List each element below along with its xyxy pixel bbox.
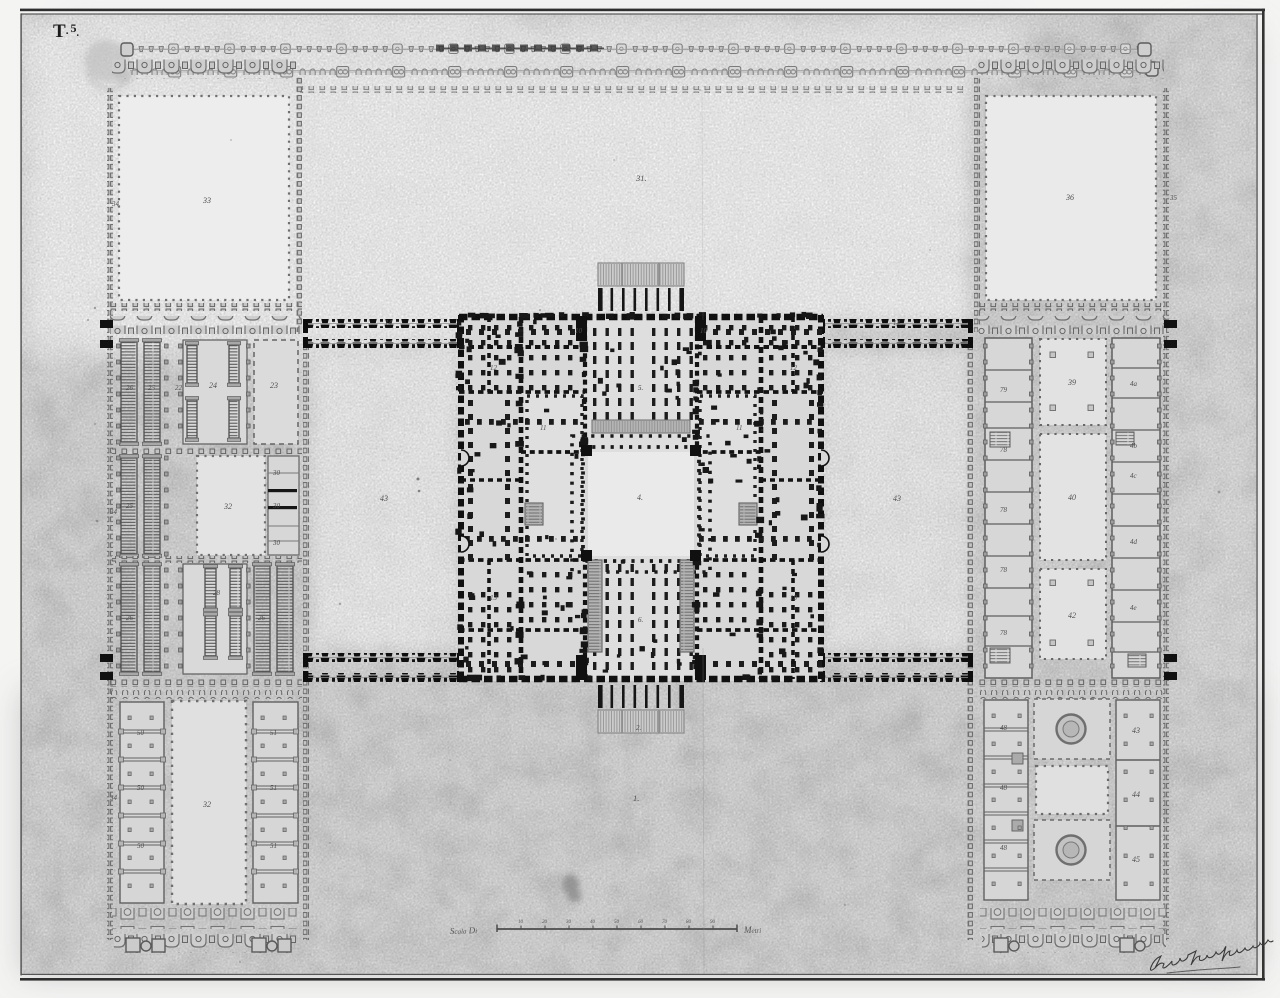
svg-text:Scala Di: Scala Di xyxy=(450,925,478,936)
svg-text:10: 10 xyxy=(575,327,583,335)
svg-text:35: 35 xyxy=(1169,194,1178,202)
svg-text:13: 13 xyxy=(490,594,498,602)
svg-text:2.: 2. xyxy=(636,724,642,732)
svg-text:48: 48 xyxy=(1000,784,1008,792)
svg-text:78: 78 xyxy=(1000,446,1008,454)
svg-text:44: 44 xyxy=(1132,790,1140,799)
svg-text:34: 34 xyxy=(109,794,118,802)
svg-text:43: 43 xyxy=(380,494,388,503)
svg-text:1.: 1. xyxy=(633,793,639,803)
svg-text:14: 14 xyxy=(893,319,901,327)
svg-text:78: 78 xyxy=(1000,566,1008,574)
svg-text:23: 23 xyxy=(270,381,278,390)
svg-text:11: 11 xyxy=(736,424,742,432)
svg-text:4d: 4d xyxy=(1130,538,1138,546)
svg-text:51: 51 xyxy=(270,729,277,737)
svg-text:22: 22 xyxy=(175,384,183,392)
svg-text:34: 34 xyxy=(111,200,120,208)
svg-text:20: 20 xyxy=(542,920,548,925)
svg-text:50: 50 xyxy=(137,729,145,737)
svg-text:34: 34 xyxy=(109,508,118,516)
svg-text:51: 51 xyxy=(270,784,277,792)
svg-text:43: 43 xyxy=(1132,726,1140,735)
svg-text:40: 40 xyxy=(1068,493,1076,502)
svg-text:26: 26 xyxy=(126,614,134,622)
svg-text:4e: 4e xyxy=(1130,604,1137,612)
svg-text:32: 32 xyxy=(202,800,211,809)
svg-text:10: 10 xyxy=(700,327,708,335)
svg-text:36: 36 xyxy=(1065,193,1074,202)
svg-text:50: 50 xyxy=(137,842,145,850)
svg-text:26: 26 xyxy=(258,614,266,622)
svg-text:31.: 31. xyxy=(635,173,647,183)
svg-text:90: 90 xyxy=(710,920,716,925)
svg-text:10: 10 xyxy=(518,920,524,925)
svg-text:Metri: Metri xyxy=(743,925,761,935)
svg-text:42: 42 xyxy=(1068,611,1076,620)
svg-text:48: 48 xyxy=(1000,844,1008,852)
svg-text:14: 14 xyxy=(385,319,393,327)
svg-text:50: 50 xyxy=(614,920,620,925)
svg-text:70: 70 xyxy=(662,920,668,925)
svg-text:5.: 5. xyxy=(638,384,644,392)
svg-text:30: 30 xyxy=(272,469,281,477)
svg-text:48: 48 xyxy=(1000,724,1008,732)
svg-text:12: 12 xyxy=(790,364,798,372)
svg-text:4c: 4c xyxy=(1130,472,1138,480)
svg-text:24: 24 xyxy=(209,381,217,390)
svg-text:30: 30 xyxy=(272,539,281,547)
svg-text:4a: 4a xyxy=(1130,380,1138,388)
svg-text:28: 28 xyxy=(213,589,221,597)
svg-text:11: 11 xyxy=(540,424,546,432)
svg-text:6.: 6. xyxy=(638,616,644,624)
svg-text:60: 60 xyxy=(638,920,644,925)
svg-text:78: 78 xyxy=(1000,629,1008,637)
svg-text:33: 33 xyxy=(202,196,211,205)
svg-text:13: 13 xyxy=(790,594,798,602)
svg-text:4b: 4b xyxy=(1130,442,1138,450)
svg-text:78: 78 xyxy=(1000,506,1008,514)
svg-text:26: 26 xyxy=(126,384,134,392)
svg-text:30: 30 xyxy=(566,920,572,925)
svg-text:80: 80 xyxy=(686,920,692,925)
svg-text:79: 79 xyxy=(1000,386,1008,394)
svg-text:4.: 4. xyxy=(637,493,643,502)
svg-text:51: 51 xyxy=(270,842,277,850)
svg-text:39: 39 xyxy=(1067,378,1076,387)
svg-text:40: 40 xyxy=(590,920,596,925)
svg-text:43: 43 xyxy=(893,494,901,503)
svg-text:45: 45 xyxy=(1132,855,1140,864)
svg-text:25: 25 xyxy=(126,502,134,510)
svg-text:32: 32 xyxy=(223,502,232,511)
svg-text:50: 50 xyxy=(137,784,145,792)
svg-text:25: 25 xyxy=(148,384,156,392)
svg-text:30: 30 xyxy=(272,502,281,510)
svg-text:12: 12 xyxy=(490,364,498,372)
